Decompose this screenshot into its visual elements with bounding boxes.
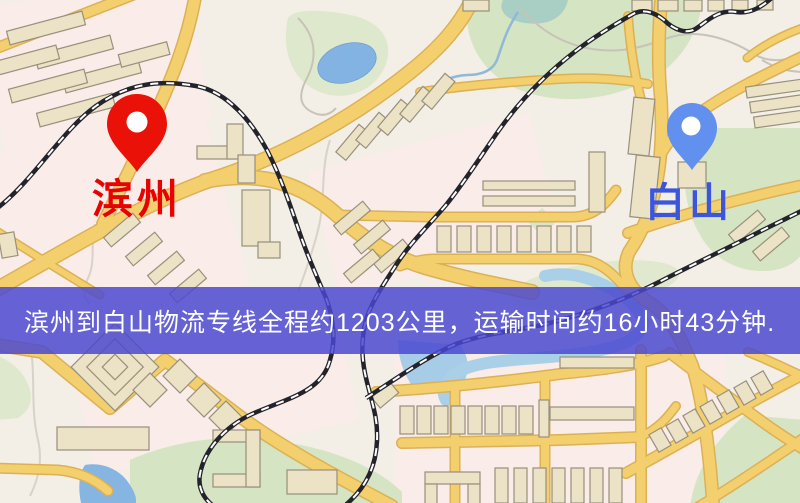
route-info-text: 滨州到白山物流专线全程约1203公里，运输时间约16小时43分钟.	[0, 303, 775, 339]
map-canvas	[0, 0, 800, 503]
baishan-label: 白山	[645, 183, 733, 223]
map-viewport[interactable]: 滨州 白山 滨州到白山物流专线全程约1203公里，运输时间约16小时43分钟.	[0, 0, 800, 503]
binzhou-label: 滨州	[92, 179, 182, 220]
route-info-banner: 滨州到白山物流专线全程约1203公里，运输时间约16小时43分钟.	[0, 287, 800, 354]
